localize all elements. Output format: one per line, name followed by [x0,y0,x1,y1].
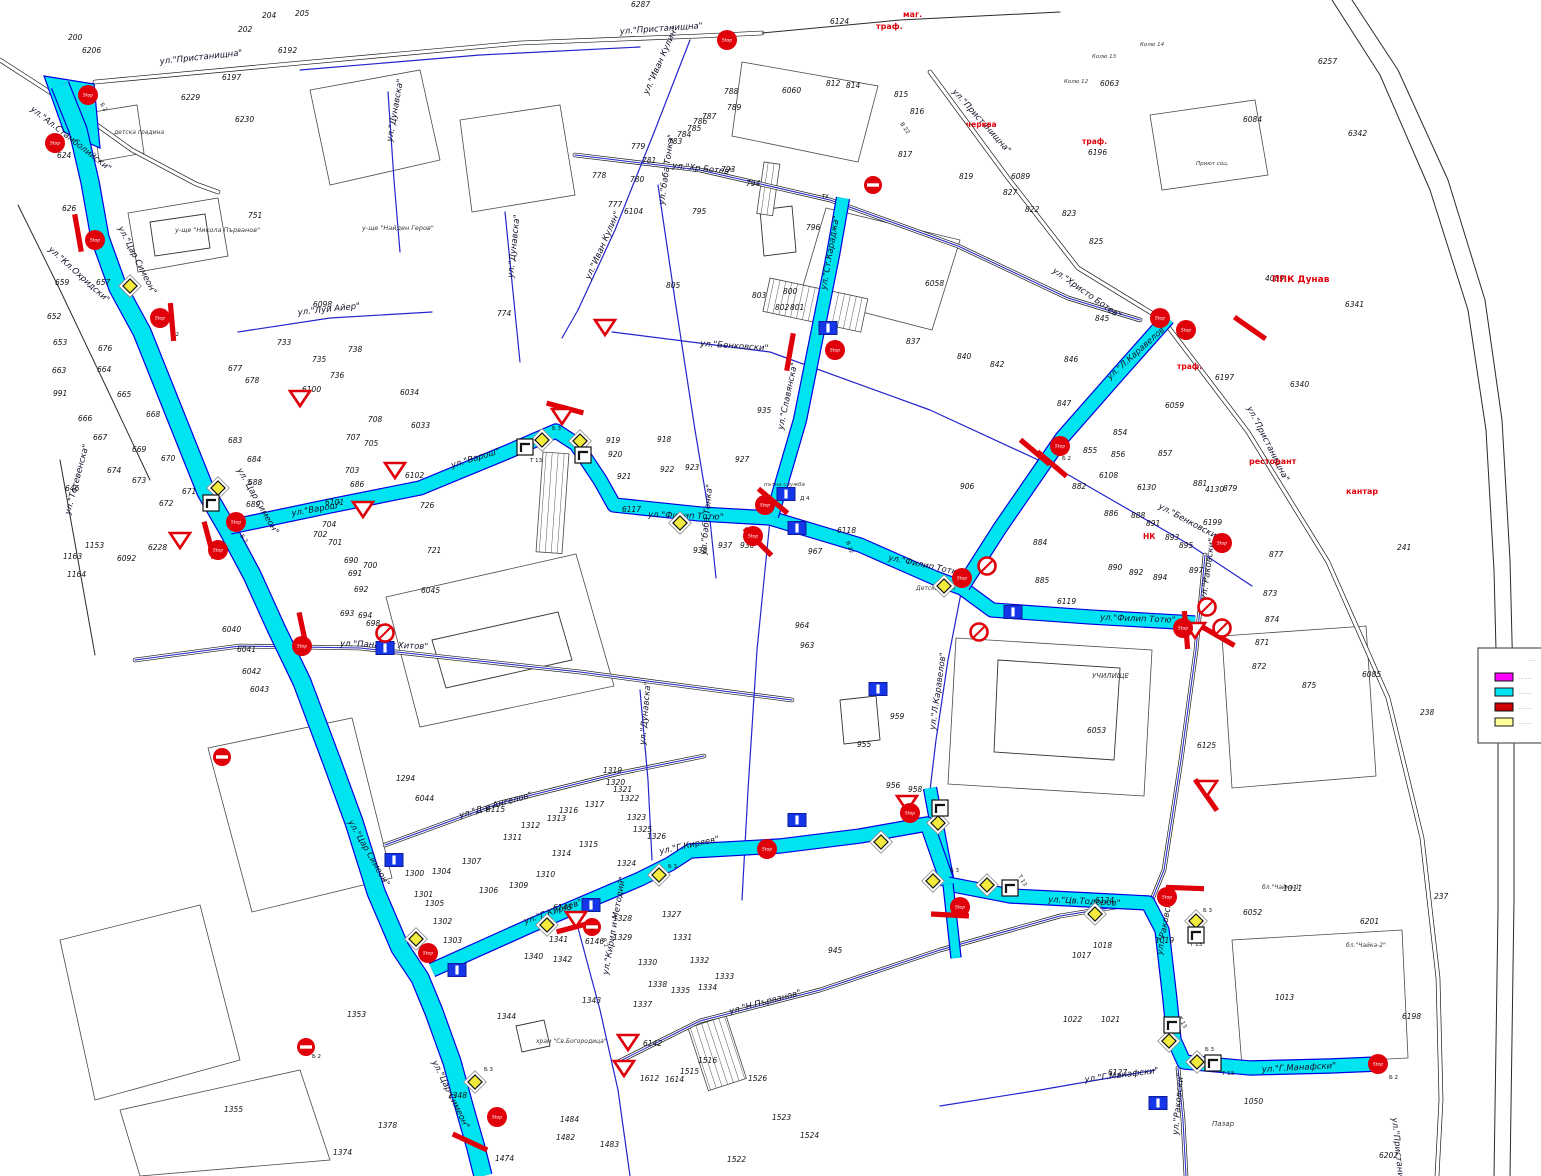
parcel-number: 1342 [553,955,572,964]
parcel-number: 1294 [396,774,415,783]
stop-sign-text: Stop [748,534,758,540]
street-name-label: ул."Д-р Ангелов" [457,790,533,821]
parcel-number: 1614 [665,1075,684,1084]
one-way-bar [876,685,879,694]
parcel-number: 1319 [603,766,622,775]
sign-code-label: Б 3 [484,1067,494,1073]
map-viewport: 2002022042056206619261976229623075162462… [0,0,1541,1176]
yield-sign-icon [614,1061,634,1076]
parcel-number: 1612 [640,1074,659,1083]
sign-code-label: Б 2 [1062,456,1071,462]
building-outline [150,214,210,256]
parcel-number: 684 [247,455,262,464]
parcel-number: 663 [52,366,67,375]
street-name-label: ул."Дунавска" [385,78,406,143]
parcel-number: 777 [608,200,623,209]
no-entry-bar [867,183,879,186]
parcel-number: 6201 [1360,917,1379,926]
parcel-number: 6130 [1137,483,1156,492]
parcel-number: 956 [886,781,901,790]
parcel-number: 1333 [715,972,734,981]
no-entry-bar [300,1045,312,1048]
parcel-number: 801 [790,303,804,312]
parcel-number: 919 [606,436,621,445]
parcel-number: 945 [828,946,843,955]
parcel-number: 892 [1129,568,1144,577]
street-name-label: ул."Дунавска" [506,214,523,279]
parcel-number: 774 [497,309,512,318]
parcel-number: 1313 [547,814,566,823]
stop-sign-text: Stop [492,1115,502,1121]
parcel-number: 700 [363,561,378,570]
parcel-number: 918 [657,435,672,444]
parcel-number: 6117 [622,505,641,514]
parcel-number: 1524 [800,1131,819,1140]
legend-label: ········· [1519,707,1532,712]
parcel-number: 6102 [405,471,424,480]
parcel-number: 200 [68,33,83,42]
parcel-number: 885 [1035,576,1050,585]
parcel-number: 665 [117,390,132,399]
legend-swatch [1495,688,1513,696]
parcel-number: 874 [1265,615,1280,624]
poi-label: Колю 13 [1092,54,1117,60]
stop-sign-text: Stop [155,316,165,322]
sign-code-label: Б 3 [552,426,562,432]
stop-sign-text: Stop [1373,1062,1383,1068]
parcel-number: 845 [1095,314,1110,323]
parcel-number: 877 [1269,550,1284,559]
parcel-number: 906 [960,482,975,491]
street-name-label: ул."Пристанищна" [1389,1116,1408,1176]
parcel-number: 6287 [631,0,650,9]
parcel-number: 6034 [400,388,419,397]
parcel-number: 6053 [1087,726,1106,735]
street-outer-road-a [1352,0,1514,1176]
poi-label: Колю 12 [1064,79,1089,85]
parcel-number: 897 [1189,566,1204,575]
parcel-number: 1326 [647,832,666,841]
parcel-number: 1163 [63,552,82,561]
street-name-label: ул."Л.Каравелов" [1105,323,1170,383]
parcel-block [386,554,614,727]
parcel-number: 1341 [549,935,568,944]
one-way-bar [1011,608,1014,617]
parcel-number: 669 [132,445,147,454]
parcel-number: 6033 [411,421,430,430]
parcel-number: 6044 [415,794,434,803]
parcel-number: 707 [346,433,361,442]
t13-junction-sign-icon [517,439,533,455]
parcel-number: 794 [746,179,761,188]
parcel-number: 671 [182,487,196,496]
parcel-number: 872 [1252,662,1267,671]
street-name-label: ул."Бенковски" [699,339,769,354]
parcel-number: 873 [1263,589,1278,598]
yield-sign-icon [595,320,615,335]
legend-label: ········· [1519,677,1532,682]
parcel-number: 6340 [1290,380,1309,389]
parcel-number: 670 [161,454,176,463]
parcel-number: 6198 [1402,1012,1421,1021]
red-poi-label: ППК Дунав [1272,275,1330,285]
parcel-number: 705 [364,439,379,448]
building-outline [516,1020,550,1052]
parcel-number: 624 [57,151,72,160]
parcel-number: 677 [228,364,243,373]
parcel-number: 1484 [560,1115,579,1124]
parcel-block [1232,930,1408,1066]
parcel-number: 6059 [1165,401,1184,410]
parcel-number: 963 [800,641,815,650]
parcel-number: 668 [146,410,161,419]
garage-strip [536,452,569,554]
parcel-number: 708 [368,415,383,424]
stop-sign-text: Stop [1162,895,1172,901]
parcel-number: 846 [1064,355,1079,364]
parcel-number: 923 [685,463,700,472]
parcel-number: 819 [959,172,974,181]
parcel-number: 6092 [117,554,136,563]
street-name-label: ул."Луи Айер" [296,301,360,318]
parcel-number: 1355 [224,1105,243,1114]
sign-code-label: Б 2 [1389,1075,1398,1081]
street-labels: ул."Ал.Стамболийски"ул."Пристанищна"ул."… [27,21,1407,1176]
parcel-number: 795 [692,207,707,216]
parcel-block [1150,100,1268,190]
yield-sign-icon [385,463,405,478]
parcel-number: 937 [718,541,733,550]
parcel-number: 920 [608,450,623,459]
parcel-number: 882 [1072,482,1087,491]
parcel-number: 204 [262,11,277,20]
parcel-number: 6257 [1318,57,1337,66]
parcel-number: 6228 [148,543,167,552]
street-rakovski-north [1151,555,1205,902]
parcel-block [460,105,575,212]
stop-sign-text: Stop [1217,541,1227,547]
street-name-label: ул."Л.Каравелов" [928,652,949,732]
legend-swatch [1495,703,1513,711]
parcel-number: 6197 [1215,373,1234,382]
stop-sign-text: Stop [50,141,60,147]
stop-sign-text: Stop [1181,328,1191,334]
parcel-number: 721 [427,546,441,555]
parcel-number: 814 [846,81,861,90]
street-panayot-hitov [135,646,792,700]
red-poi-label: траф. [876,22,903,31]
parcel-number: 837 [906,337,921,346]
parcel-number: 857 [1158,449,1173,458]
red-poi-labels: маг.траф.черкватраф.ППК Дунавтраф.рестор… [876,10,1378,541]
parcel-block [732,62,878,162]
parcel-number: 664 [97,365,112,374]
stop-sign-text: Stop [905,811,915,817]
parcel-number: 692 [354,585,369,594]
parcel-number: 781 [642,156,656,165]
parcel-number: 626 [62,204,77,213]
yield-sign-icon [170,533,190,548]
parcel-number: 6063 [1100,79,1119,88]
parcel-number: 1526 [748,1074,767,1083]
street-name-label: ул."Пристанищна" [1244,404,1291,483]
parcel-number: 1013 [1275,993,1294,1002]
sign-code-label: ТУ [821,194,829,200]
parcel-number: 921 [617,472,631,481]
parcel-number: 1311 [503,833,522,842]
parcel-number: 935 [757,406,772,415]
map-legend: ········································… [1478,648,1541,743]
poi-label: у-ще "Найден Геров" [361,224,434,232]
one-way-bar [784,490,787,499]
parcel-number: 1337 [633,1000,652,1009]
parcel-number: 6104 [624,207,643,216]
parcel-number: 1153 [85,541,104,550]
street-lui-ayer [238,312,432,332]
parcel-number: 871 [1255,638,1269,647]
parcel-number: 879 [1223,484,1238,493]
parcel-number: 1322 [620,794,639,803]
parcel-block [120,1070,330,1176]
street-name-label: ул."Н.Първанов" [727,988,802,1017]
parcel-number: 856 [1111,450,1126,459]
parcel-number: 6119 [1057,597,1076,606]
parcel-number: 1022 [1063,1015,1082,1024]
parcel-number: 6085 [1362,670,1381,679]
stop-sign-text: Stop [297,644,307,650]
parcel-number: 1340 [524,952,543,961]
parcel-number: 690 [344,556,359,565]
parcel-number: 1303 [443,936,462,945]
road-closure-bar [1233,315,1267,341]
parcel-number: 803 [752,291,767,300]
parcel-number: 678 [245,376,260,385]
parcel-number: 1378 [378,1121,397,1130]
poi-label: Пазар [1212,1120,1235,1128]
t13-junction-sign-icon [1205,1055,1221,1071]
parcel-number: 693 [340,609,355,618]
parcel-number: 1327 [662,910,681,919]
parcel-number: 6206 [82,46,101,55]
parcel-number: 1304 [432,867,451,876]
legend-note: ····· [1528,659,1535,664]
parcel-number: 691 [348,569,362,578]
parcel-number: 1330 [638,958,657,967]
t13-junction-sign-icon [932,800,948,816]
parcel-number: 202 [238,25,253,34]
parcel-number: 884 [1033,538,1048,547]
parcel-number: 895 [1179,541,1194,550]
street-name-label: ул."Хр.Ботев" [671,161,734,177]
parcel-number: 922 [660,465,675,474]
legend-label: ········· [1519,692,1532,697]
parcel-number: 6142 [643,1039,662,1048]
red-poi-label: НК [1143,532,1156,541]
garage-strip [688,1016,746,1091]
stop-sign-text: Stop [830,348,840,354]
parcel-number: 812 [826,79,841,88]
parcel-number: 238 [1420,708,1435,717]
parcel-number: 683 [228,436,243,445]
parcel-number: 4130 [1205,485,1224,494]
red-poi-label: черква [966,120,997,129]
parcel-number: 6108 [1099,471,1118,480]
parcel-number: 1343 [582,996,601,1005]
parcel-number: 1309 [509,881,528,890]
parcel-number: 1335 [671,986,690,995]
parcel-number: 751 [248,211,262,220]
stop-sign-text: Stop [213,548,223,554]
sign-code-label: Б 3 [1205,1047,1215,1053]
legend-swatch [1495,718,1513,726]
stop-sign-text: Stop [1178,626,1188,632]
parcel-number: 894 [1153,573,1168,582]
route-tsar-simeon [60,85,483,1176]
parcel-number: 6084 [1243,115,1262,124]
stop-sign-text: Stop [83,93,93,99]
parcel-number: 6196 [1088,148,1107,157]
parcel-number: 847 [1057,399,1072,408]
no-entry-bar [586,925,598,928]
parcel-number: 854 [1113,428,1128,437]
parcel-number: 672 [159,499,174,508]
parcel-number: 1516 [698,1056,717,1065]
t13-junction-sign-icon [1164,1017,1180,1033]
parcel-number: 6060 [782,86,801,95]
parcel-number: 6342 [1348,129,1367,138]
stop-sign-text: Stop [423,951,433,957]
parcel-number: 6041 [237,645,256,654]
poi-label: бл."Чайка-1" [1262,884,1302,891]
one-way-bar [1156,1099,1159,1108]
parcel-number: 1334 [698,983,717,992]
yield-sign-icon [290,391,310,406]
one-way-bar [795,816,798,825]
poi-label: храм "Св.Богородица" [535,1038,607,1045]
parcel-number: 736 [330,371,345,380]
street-panayot-hitov [135,646,792,700]
parcel-number: 6124 [830,17,849,26]
street-name-label: ул."Тетевенска" [63,443,92,517]
sign-code-label: В 22 [898,122,910,136]
parcel-number: 827 [1003,188,1018,197]
parcel-number: 6341 [1345,300,1364,309]
parcel-number: 666 [78,414,93,423]
parcel-number: 237 [1434,892,1449,901]
parcel-number: 1050 [1244,1097,1263,1106]
parcel-number: 1331 [673,933,692,942]
poi-label: Приют соц. [1196,161,1229,167]
parcel-number: 1307 [462,857,481,866]
stop-sign-text: Stop [957,576,967,582]
parcel-number: 6192 [278,46,297,55]
parcel-number: 6229 [181,93,200,102]
sign-code-label: Б 3 [668,864,678,870]
sign-code-label: Т 13 [1221,1071,1235,1077]
road-closure-bar [72,214,84,252]
parcel-number: 738 [348,345,363,354]
t13-junction-sign-icon [1188,927,1204,943]
parcel-number: 702 [313,530,328,539]
parcel-number: 1018 [1093,941,1112,950]
sign-code-label: Б 3 [1203,908,1213,914]
parcel-number: 6045 [421,586,440,595]
parcel-number: 673 [132,476,147,485]
legend-label: ········· [1519,722,1532,727]
parcel-number: 955 [857,740,872,749]
red-poi-label: траф. [1082,137,1107,146]
street-rakovski-north [1151,555,1205,902]
stop-sign-text: Stop [231,520,241,526]
parcel-number: 1324 [617,859,636,868]
parcel-number: 667 [93,433,108,442]
parcel-number: 674 [107,466,122,475]
parcel-number: 780 [630,175,645,184]
parcel-number: 788 [724,87,739,96]
parcel-number: 6042 [242,667,261,676]
parcel-number: 686 [350,480,365,489]
parcel-number: 1483 [600,1140,619,1149]
parcel-number: 893 [1165,533,1180,542]
parcel-block [60,905,240,1100]
parcel-number: 890 [1108,563,1123,572]
poi-label: у-ще "Никола Първанов" [174,226,260,234]
t13-junction-sign-icon [203,495,219,511]
street-name-label: ул."Иван Кулин" [583,210,622,282]
parcel-number: 1332 [690,956,709,965]
legend-swatch [1495,673,1513,681]
parcel-number: 805 [666,281,681,290]
parcel-number: 816 [910,107,925,116]
parcel-number: 1310 [536,870,555,879]
parcel-number: 6043 [250,685,269,694]
sign-code-label: Б 2 [312,1054,321,1060]
parcel-number: 1164 [67,570,86,579]
parcel-number: 855 [1083,446,1098,455]
red-poi-label: кантар [1346,487,1378,496]
parcel-number: 825 [1089,237,1104,246]
parcel-number: 1021 [1101,1015,1120,1024]
parcel-number: 6089 [1011,172,1030,181]
one-way-bar [795,524,798,533]
parcel-number: 796 [806,223,821,232]
parcel-number: 789 [727,103,742,112]
parcel-number: 735 [312,355,327,364]
parcel-number: 959 [890,712,905,721]
one-way-bar [826,324,829,333]
poi-label: детска градина [113,129,164,136]
parcel-number: 1315 [579,840,598,849]
sign-code-label: Д 4 [800,496,810,502]
parcel-number: 6040 [222,625,241,634]
one-way-bar [589,901,592,910]
stop-sign-text: Stop [760,503,770,509]
parcel-block [310,70,440,185]
parcel-number: 822 [1025,205,1040,214]
stop-sign-text: Stop [762,847,772,853]
parcel-number: 875 [1302,681,1317,690]
parcel-number: 1301 [414,890,433,899]
parcel-number: 800 [783,287,798,296]
yield-sign-icon [618,1035,638,1050]
t13-junction-sign-icon [575,447,591,463]
stop-sign-text: Stop [1155,316,1165,322]
parcel-number: 1321 [613,785,632,794]
parcel-number: 1312 [521,821,540,830]
parcel-number: 1300 [405,869,424,878]
street-ivan-kulin [562,40,690,338]
stop-sign-text: Stop [722,38,732,44]
